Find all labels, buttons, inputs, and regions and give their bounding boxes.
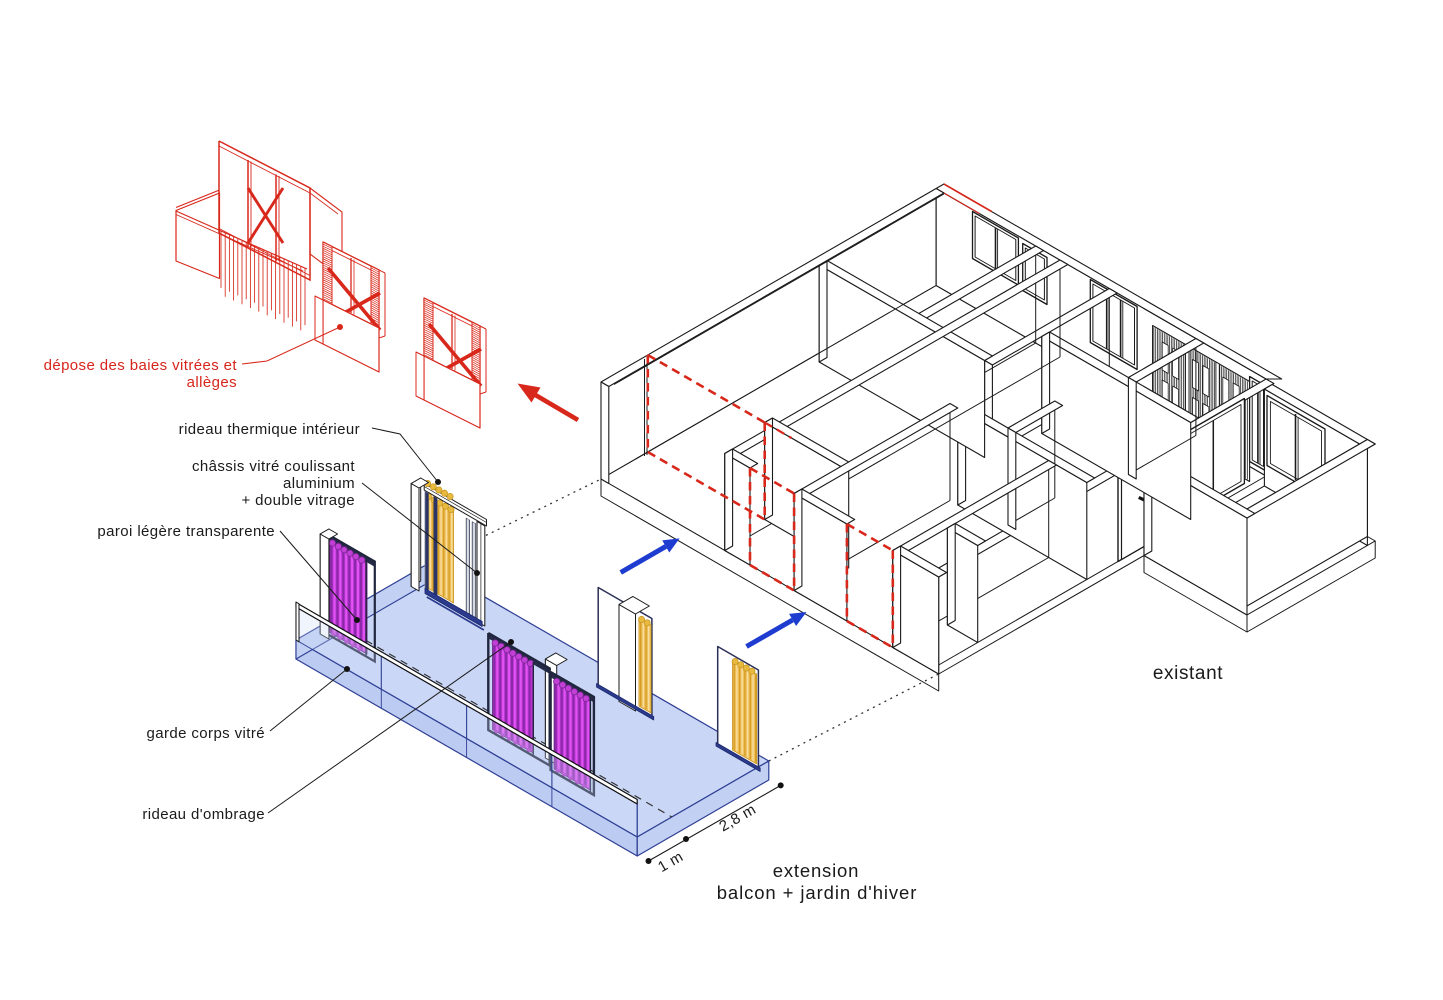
svg-text:balcon + jardin d'hiver: balcon + jardin d'hiver xyxy=(717,882,918,903)
svg-text:existant: existant xyxy=(1153,663,1223,684)
svg-text:extension: extension xyxy=(773,860,859,881)
svg-text:aluminium: aluminium xyxy=(283,475,355,492)
svg-text:garde corps vitré: garde corps vitré xyxy=(146,725,265,742)
svg-text:rideau d'ombrage: rideau d'ombrage xyxy=(142,806,265,823)
svg-text:allèges: allèges xyxy=(187,374,237,391)
svg-text:dépose des baies vitrées et: dépose des baies vitrées et xyxy=(44,357,238,374)
svg-text:+ double vitrage: + double vitrage xyxy=(241,492,355,509)
svg-text:rideau thermique intérieur: rideau thermique intérieur xyxy=(179,421,360,438)
svg-text:châssis vitré coulissant: châssis vitré coulissant xyxy=(192,458,355,475)
svg-text:paroi légère transparente: paroi légère transparente xyxy=(97,523,275,540)
